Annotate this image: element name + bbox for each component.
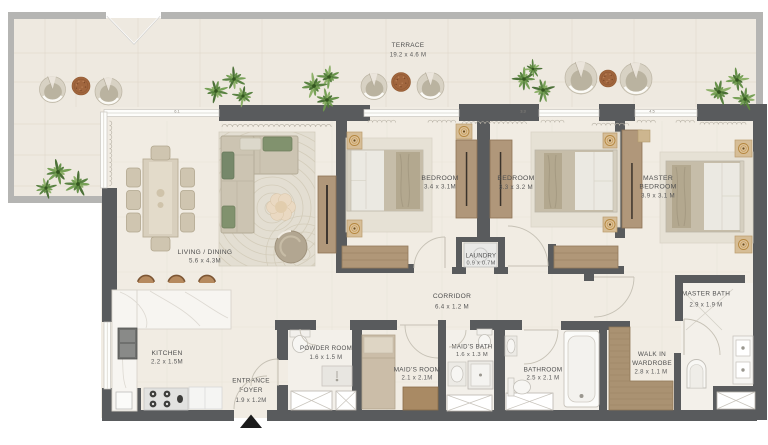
svg-text:MAID’S BATH: MAID’S BATH (452, 345, 493, 351)
svg-text:BEDROOM: BEDROOM (497, 175, 534, 182)
svg-text:CORRIDOR: CORRIDOR (433, 293, 471, 300)
svg-text:2.9 x 1.9 M: 2.9 x 1.9 M (690, 303, 723, 309)
svg-text:6.4 x 1.2 M: 6.4 x 1.2 M (435, 304, 469, 311)
svg-text:WARDROBE: WARDROBE (632, 360, 672, 367)
svg-text:1.9 x 1.2M: 1.9 x 1.2M (235, 398, 266, 404)
svg-text:BEDROOM: BEDROOM (639, 184, 676, 191)
svg-text:WALK IN: WALK IN (638, 351, 666, 358)
svg-text:3.3: 3.3 (520, 109, 526, 114)
svg-text:MASTER: MASTER (643, 175, 673, 182)
svg-text:LIVING / DINING: LIVING / DINING (178, 249, 233, 256)
svg-text:19.2 x 4.6 M: 19.2 x 4.6 M (390, 53, 427, 59)
svg-text:1.6 x 1.5 M: 1.6 x 1.5 M (310, 355, 343, 361)
svg-text:2.2 x 1.5M: 2.2 x 1.5M (151, 359, 183, 366)
svg-text:POWDER ROOM: POWDER ROOM (300, 345, 352, 352)
svg-text:MASTER BATH: MASTER BATH (682, 291, 730, 298)
svg-text:5.6 x 4.3M: 5.6 x 4.3M (189, 258, 221, 265)
svg-text:BATHROOM: BATHROOM (524, 367, 563, 374)
svg-text:4.5: 4.5 (649, 109, 655, 114)
svg-text:TERRACE: TERRACE (392, 42, 425, 49)
svg-text:2.8 x 1.1 M: 2.8 x 1.1 M (635, 370, 668, 376)
svg-text:2.1 x 2.1M: 2.1 x 2.1M (401, 376, 432, 382)
svg-text:3.9 x 3.1 M: 3.9 x 3.1 M (641, 193, 675, 200)
svg-text:0.9 x 0.7M: 0.9 x 0.7M (466, 261, 495, 267)
svg-text:KITCHEN: KITCHEN (151, 350, 182, 357)
svg-text:2.5 x 2.1 M: 2.5 x 2.1 M (527, 376, 560, 382)
svg-text:LAUNDRY: LAUNDRY (466, 254, 497, 260)
svg-text:MAID’S ROOM: MAID’S ROOM (394, 367, 441, 374)
svg-text:FOYER: FOYER (239, 387, 263, 394)
svg-text:3.4 x 3.1M: 3.4 x 3.1M (424, 184, 456, 191)
svg-text:1.6 x 1.3 M: 1.6 x 1.3 M (456, 352, 488, 358)
svg-text:BEDROOM: BEDROOM (421, 175, 458, 182)
svg-text:6.1: 6.1 (174, 109, 180, 114)
svg-text:3.3 x 3.2 M: 3.3 x 3.2 M (499, 184, 533, 191)
